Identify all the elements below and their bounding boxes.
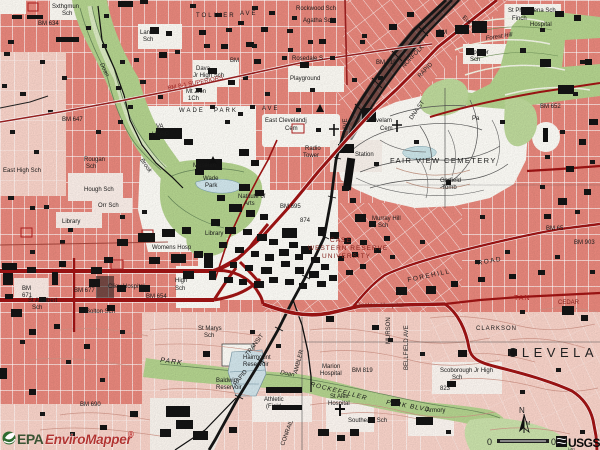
svg-text:M: M: [526, 421, 530, 427]
svg-text:®: ®: [128, 430, 134, 439]
svg-text:N: N: [519, 406, 525, 415]
svg-text:0: 0: [487, 437, 492, 447]
svg-text:EPA: EPA: [17, 431, 44, 447]
svg-text:Lan: Lan: [568, 446, 575, 450]
svg-text:0: 0: [551, 437, 556, 447]
svg-text:EnviroMapper: EnviroMapper: [45, 432, 132, 447]
